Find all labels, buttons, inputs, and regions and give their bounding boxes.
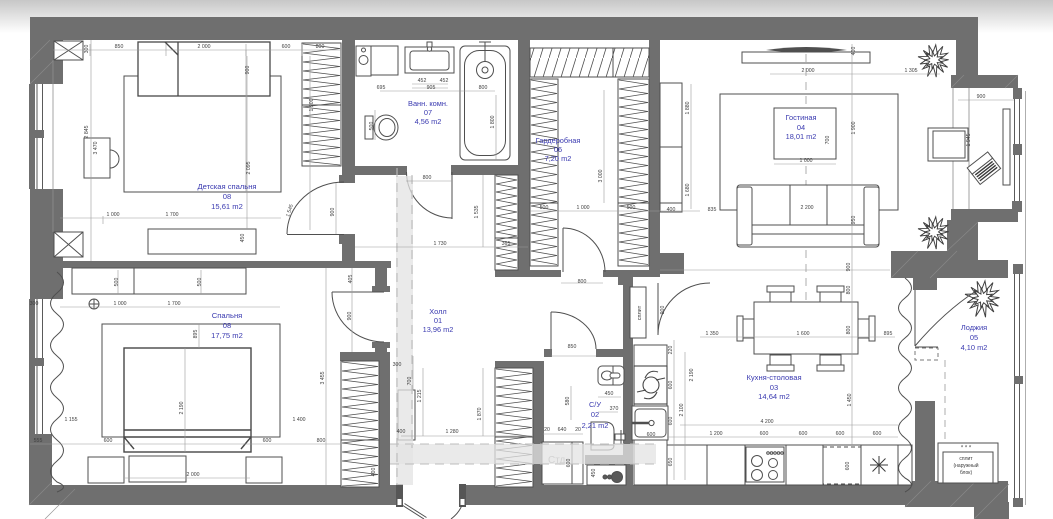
svg-text:800: 800	[423, 175, 432, 181]
svg-text:950: 950	[851, 216, 857, 225]
svg-text:1 900: 1 900	[851, 121, 857, 134]
svg-text:15,61 m2: 15,61 m2	[211, 202, 243, 211]
svg-text:600: 600	[760, 431, 769, 437]
svg-text:сплит: сплит	[637, 305, 643, 320]
svg-text:850: 850	[115, 44, 124, 50]
svg-text:600: 600	[836, 431, 845, 437]
svg-text:600: 600	[799, 431, 808, 437]
svg-text:450: 450	[605, 391, 614, 397]
svg-text:2,21 m2: 2,21 m2	[582, 421, 609, 430]
svg-text:695: 695	[377, 85, 386, 91]
svg-text:1 450: 1 450	[847, 393, 853, 406]
svg-text:1 870: 1 870	[477, 407, 483, 420]
svg-text:Лоджия: Лоджия	[961, 323, 987, 332]
svg-text:600: 600	[282, 44, 291, 50]
svg-text:08: 08	[223, 321, 231, 330]
svg-text:1 280: 1 280	[446, 429, 459, 435]
svg-text:4,56 m2: 4,56 m2	[415, 117, 442, 126]
svg-text:Гостиная: Гостиная	[785, 113, 816, 122]
svg-text:1 535: 1 535	[474, 205, 480, 218]
svg-text:452: 452	[418, 78, 427, 84]
svg-text:700: 700	[825, 136, 831, 145]
svg-text:* * *: * * *	[961, 446, 972, 452]
svg-text:300: 300	[30, 301, 39, 307]
svg-text:900: 900	[846, 263, 852, 272]
svg-text:2 000: 2 000	[198, 44, 211, 50]
svg-text:3 455: 3 455	[320, 371, 326, 384]
svg-text:900: 900	[330, 208, 336, 217]
svg-text:600: 600	[647, 432, 656, 438]
svg-text:Стд: Стд	[548, 455, 565, 466]
svg-text:1 880: 1 880	[685, 101, 691, 114]
svg-text:1 945: 1 945	[966, 133, 972, 146]
svg-text:Гардеробная: Гардеробная	[536, 136, 581, 145]
svg-text:1 305: 1 305	[905, 68, 918, 74]
svg-text:450: 450	[591, 469, 597, 478]
svg-text:07: 07	[424, 108, 432, 117]
svg-text:1 800: 1 800	[490, 115, 496, 128]
svg-text:850: 850	[568, 344, 577, 350]
svg-text:2 000: 2 000	[802, 68, 815, 74]
svg-text:4 200: 4 200	[761, 419, 774, 425]
svg-text:17,75 m2: 17,75 m2	[211, 331, 243, 340]
svg-text:13,96 m2: 13,96 m2	[423, 325, 454, 334]
svg-text:1 700: 1 700	[168, 301, 181, 307]
svg-text:650: 650	[668, 458, 674, 467]
svg-text:450: 450	[240, 234, 246, 243]
svg-text:1 000: 1 000	[800, 158, 813, 164]
svg-text:555: 555	[34, 438, 43, 444]
svg-text:600: 600	[263, 438, 272, 444]
svg-text:7,20 m2: 7,20 m2	[545, 154, 572, 163]
svg-text:500: 500	[114, 278, 120, 287]
svg-text:405: 405	[348, 275, 354, 284]
svg-text:600: 600	[104, 438, 113, 444]
svg-text:06: 06	[554, 145, 562, 154]
svg-text:2 190: 2 190	[179, 401, 185, 414]
svg-text:1 700: 1 700	[166, 212, 179, 218]
svg-text:900: 900	[245, 66, 251, 75]
svg-text:блок): блок)	[960, 470, 973, 476]
svg-text:4,10 m2: 4,10 m2	[961, 343, 988, 352]
svg-text:1 200: 1 200	[710, 431, 723, 437]
svg-text:2 095: 2 095	[246, 161, 252, 174]
svg-text:18,01 m2: 18,01 m2	[786, 132, 817, 141]
svg-text:сплит: сплит	[959, 456, 973, 462]
svg-text:Ванн. комн.: Ванн. комн.	[408, 99, 448, 108]
svg-text:905: 905	[427, 85, 436, 91]
svg-text:1 900: 1 900	[309, 98, 315, 111]
svg-text:600: 600	[845, 462, 851, 471]
svg-text:20: 20	[544, 427, 550, 433]
svg-text:1 730: 1 730	[434, 241, 447, 247]
svg-text:01: 01	[434, 316, 442, 325]
svg-text:300: 300	[84, 45, 90, 54]
svg-text:500: 500	[627, 205, 636, 211]
svg-text:1 680: 1 680	[685, 183, 691, 196]
svg-text:600: 600	[566, 459, 572, 468]
svg-text:С/У: С/У	[589, 400, 601, 409]
svg-text:2 100: 2 100	[679, 403, 685, 416]
svg-text:Спальня: Спальня	[212, 311, 243, 320]
svg-text:400: 400	[667, 207, 676, 213]
svg-text:800: 800	[578, 279, 587, 285]
svg-text:1 600: 1 600	[797, 331, 810, 337]
svg-text:1 000: 1 000	[577, 205, 590, 211]
svg-text:800: 800	[316, 44, 325, 50]
svg-text:1 000: 1 000	[107, 212, 120, 218]
svg-text:05: 05	[970, 333, 978, 342]
svg-text:365: 365	[502, 241, 511, 247]
svg-text:452: 452	[440, 78, 449, 84]
svg-text:370: 370	[610, 406, 619, 412]
svg-text:04: 04	[797, 123, 805, 132]
svg-text:1 215: 1 215	[417, 389, 423, 402]
svg-text:20: 20	[575, 427, 581, 433]
svg-text:800: 800	[317, 438, 326, 444]
svg-text:895: 895	[884, 331, 893, 337]
svg-text:02: 02	[591, 410, 599, 419]
svg-text:600: 600	[873, 431, 882, 437]
svg-text:600: 600	[668, 417, 674, 426]
svg-text:580: 580	[565, 397, 571, 406]
svg-text:2 190: 2 190	[689, 368, 695, 381]
svg-text:500: 500	[197, 278, 203, 287]
svg-text:835: 835	[708, 207, 717, 213]
svg-text:400: 400	[397, 429, 406, 435]
svg-text:1 000: 1 000	[114, 301, 127, 307]
svg-text:2 200: 2 200	[801, 205, 814, 211]
svg-text:800: 800	[479, 85, 488, 91]
svg-text:300: 300	[393, 362, 402, 368]
svg-text:900: 900	[347, 312, 353, 321]
svg-text:(наружный: (наружный	[954, 462, 979, 469]
svg-text:895: 895	[193, 330, 199, 339]
svg-text:800: 800	[846, 326, 852, 335]
svg-text:Детская спальня: Детская спальня	[197, 182, 256, 191]
svg-text:500: 500	[369, 122, 375, 131]
svg-text:1 155: 1 155	[65, 417, 78, 423]
svg-text:400: 400	[851, 47, 857, 56]
svg-text:Холл: Холл	[429, 307, 446, 316]
svg-text:640: 640	[558, 427, 567, 433]
svg-text:14,64 m2: 14,64 m2	[758, 392, 790, 401]
svg-text:1 350: 1 350	[706, 331, 719, 337]
svg-text:600: 600	[668, 381, 674, 390]
svg-text:2 000: 2 000	[187, 472, 200, 478]
svg-text:800: 800	[846, 286, 852, 295]
svg-text:220: 220	[668, 346, 674, 355]
svg-text:700: 700	[407, 377, 413, 386]
svg-text:400: 400	[371, 468, 377, 477]
svg-text:08: 08	[223, 192, 231, 201]
svg-text:900: 900	[660, 306, 666, 315]
svg-text:3 000: 3 000	[598, 169, 604, 182]
svg-text:Кухня-столовая: Кухня-столовая	[746, 373, 801, 382]
svg-text:900: 900	[977, 94, 986, 100]
svg-text:3 470: 3 470	[93, 141, 99, 154]
svg-text:1 400: 1 400	[293, 417, 306, 423]
svg-text:500: 500	[540, 205, 549, 211]
svg-text:03: 03	[770, 383, 778, 392]
svg-text:2 845: 2 845	[84, 125, 90, 138]
